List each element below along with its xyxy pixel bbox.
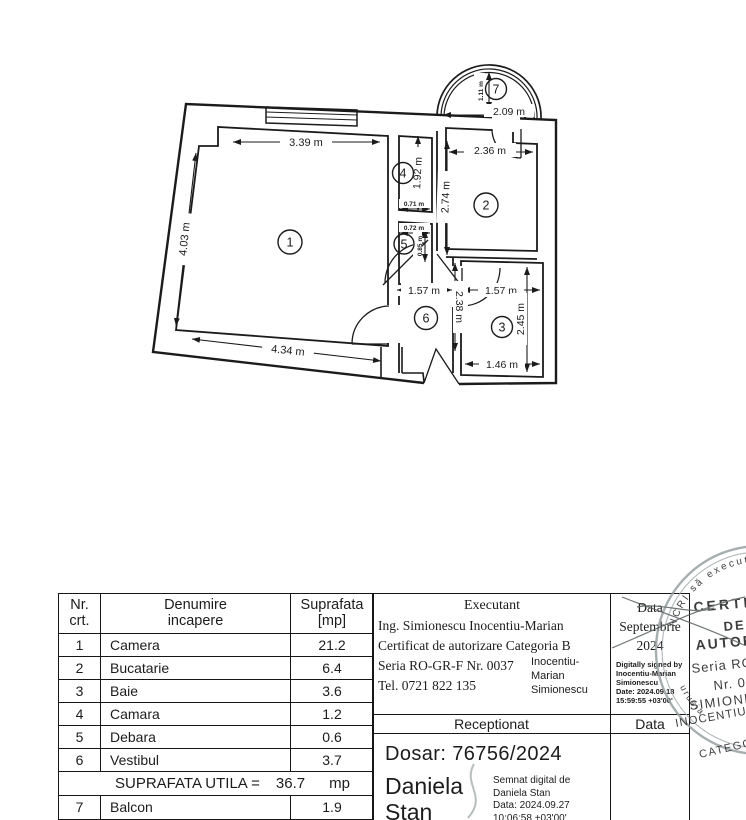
dim-label: 1.92 m bbox=[411, 156, 425, 189]
sig-name-line: Simionescu bbox=[531, 683, 588, 697]
dimension-labels: 3.39 m 4.03 m 4.34 m 1.92 m 2.74 m 2.36 … bbox=[173, 73, 534, 371]
row-area: 3.6 bbox=[291, 680, 373, 703]
row-name: Baie bbox=[101, 680, 291, 703]
row-nr: 6 bbox=[59, 749, 101, 772]
executant-cell: Executant Ing. Simionescu Inocentiu-Mari… bbox=[373, 594, 611, 715]
receiver-last-name: Stan bbox=[385, 799, 463, 820]
room-area-table: Nr. crt. Denumire incapere Suprafata [mp… bbox=[58, 593, 374, 820]
header-line: Nr. bbox=[70, 598, 89, 613]
executant-name: Ing. Simionescu Inocentiu-Marian bbox=[378, 616, 606, 636]
apartment-walls bbox=[153, 65, 556, 384]
row-name: Vestibul bbox=[101, 749, 291, 772]
data-header: Data bbox=[611, 715, 689, 734]
dim-label: 1.57 m bbox=[408, 285, 440, 297]
dim-label: 2.09 m bbox=[493, 106, 525, 118]
stamp-line: CATEGO bbox=[698, 737, 746, 761]
dim-label: 2.74 m bbox=[439, 181, 452, 214]
header-line: crt. bbox=[69, 614, 89, 629]
row-nr: 5 bbox=[59, 726, 101, 749]
data-header-label: Data bbox=[635, 717, 665, 731]
dosar-number: Dosar: 76756/2024 bbox=[385, 743, 610, 766]
header-nr-crt: Nr. crt. bbox=[59, 594, 101, 634]
empty-data-cell bbox=[611, 734, 689, 820]
row-area: 21.2 bbox=[291, 634, 373, 657]
dim-label: 1.46 m bbox=[486, 359, 518, 371]
room-number-labels: 1 2 3 4 5 6 7 bbox=[287, 83, 506, 335]
dim-label: 4.03 m bbox=[177, 222, 192, 257]
dim-label: 2.36 m bbox=[474, 145, 506, 157]
dosar-cell: Dosar: 76756/2024 Daniela Stan Semnat di… bbox=[373, 734, 611, 820]
stamp-line: CERTIFIC bbox=[693, 591, 746, 615]
total-label: SUPRAFATA UTILA = bbox=[115, 776, 260, 792]
receiver-first-name: Daniela bbox=[385, 773, 463, 799]
dim-label: 2.38 m bbox=[453, 291, 465, 323]
room-label-2: 2 bbox=[483, 199, 490, 213]
room-label-6: 6 bbox=[423, 312, 430, 326]
scanned-document-page: 3.39 m 4.03 m 4.34 m 1.92 m 2.74 m 2.36 … bbox=[0, 0, 746, 820]
header-line: Suprafata bbox=[301, 598, 364, 613]
room-label-5: 5 bbox=[401, 238, 408, 252]
dimension-lines bbox=[176, 72, 540, 372]
total-row: SUPRAFATA UTILA = 36.7 mp bbox=[59, 772, 373, 796]
semnat-line: Semnat digital de bbox=[493, 775, 570, 788]
executant-digital-signature-name: Inocentiu- Marian Simionescu bbox=[531, 655, 588, 697]
executant-title: Executant bbox=[378, 596, 606, 616]
stamp-line: SIMIONE bbox=[689, 690, 746, 713]
stamp-line: DE bbox=[723, 617, 746, 634]
data-label: Data bbox=[611, 598, 689, 617]
door-swings bbox=[352, 129, 521, 384]
receptionat-header: Receptionat bbox=[373, 715, 611, 734]
row-area: 0.6 bbox=[291, 726, 373, 749]
room-label-3: 3 bbox=[499, 321, 506, 335]
dim-label: 1.11 m bbox=[478, 81, 485, 101]
row-name: Camera bbox=[101, 634, 291, 657]
semnat-line: 10:06:58 +03'00' bbox=[493, 813, 570, 820]
row-area: 1.9 bbox=[291, 796, 373, 820]
dim-label: 4.34 m bbox=[271, 343, 306, 358]
row-nr: 1 bbox=[59, 634, 101, 657]
stamp-line: AUTORIZ bbox=[695, 630, 746, 653]
header-suprafata: Suprafata [mp] bbox=[291, 594, 373, 634]
dim-label: 2.45 m bbox=[515, 303, 527, 335]
row-name: Balcon bbox=[101, 796, 291, 820]
dim-label: 3.39 m bbox=[289, 137, 323, 149]
receptionat-label: Receptionat bbox=[454, 717, 529, 731]
digsig-line: Date: 2024.09.18 bbox=[616, 687, 689, 696]
semnat-line: Daniela Stan bbox=[493, 788, 570, 801]
row-name: Bucatarie bbox=[101, 657, 291, 680]
door-openings bbox=[385, 112, 520, 343]
row-area: 1.2 bbox=[291, 703, 373, 726]
dim-label: 0.85 m bbox=[417, 236, 424, 256]
row-nr: 7 bbox=[59, 796, 101, 820]
stamp-line: Seria RO- bbox=[691, 654, 746, 676]
digsig-line: Inocentiu-Marian bbox=[616, 669, 689, 678]
header-line: incapere bbox=[168, 614, 224, 629]
room-numbers bbox=[278, 79, 513, 338]
row-nr: 2 bbox=[59, 657, 101, 680]
sig-name-line: Marian bbox=[531, 669, 588, 683]
header-line: [mp] bbox=[318, 614, 346, 629]
receiver-name: Daniela Stan bbox=[385, 773, 463, 820]
room-label-4: 4 bbox=[400, 167, 407, 181]
room-label-7: 7 bbox=[493, 83, 500, 97]
header-denumire: Denumire incapere bbox=[101, 594, 291, 634]
receiver-signature: Daniela Stan Semnat digital de Daniela S… bbox=[385, 771, 610, 820]
digsig-line: Simionescu bbox=[616, 678, 689, 687]
data-year: 2024 bbox=[611, 636, 689, 655]
semnat-line: Data: 2024.09.27 bbox=[493, 800, 570, 813]
row-nr: 4 bbox=[59, 703, 101, 726]
stamp-line: Nr. 00 bbox=[713, 674, 746, 693]
total-value: 36.7 bbox=[276, 776, 305, 792]
total-unit: mp bbox=[329, 776, 350, 792]
room-label-1: 1 bbox=[287, 236, 294, 250]
row-name: Camara bbox=[101, 703, 291, 726]
digital-signature-details: Digitally signed by Inocentiu-Marian Sim… bbox=[611, 655, 689, 705]
sig-name-line: Inocentiu- bbox=[531, 655, 588, 669]
data-month: Septembrie bbox=[611, 617, 689, 636]
dim-label: 0.71 m bbox=[404, 201, 424, 208]
data-cell: Data Septembrie 2024 Digitally signed by… bbox=[611, 594, 689, 715]
digsig-line: Digitally signed by bbox=[616, 660, 689, 669]
row-nr: 3 bbox=[59, 680, 101, 703]
row-area: 3.7 bbox=[291, 749, 373, 772]
executant-certificate: Certificat de autorizare Categoria B bbox=[378, 636, 606, 656]
signature-section: Executant Ing. Simionescu Inocentiu-Mari… bbox=[372, 593, 690, 820]
row-name: Debara bbox=[101, 726, 291, 749]
header-line: Denumire bbox=[164, 598, 227, 613]
row-area: 6.4 bbox=[291, 657, 373, 680]
dim-label: 0.72 m bbox=[404, 225, 424, 232]
digsig-line: 15:59:55 +03'00' bbox=[616, 696, 689, 705]
receiver-digital-signature-details: Semnat digital de Daniela Stan Data: 202… bbox=[493, 775, 570, 820]
dim-label: 1.57 m bbox=[485, 285, 517, 297]
